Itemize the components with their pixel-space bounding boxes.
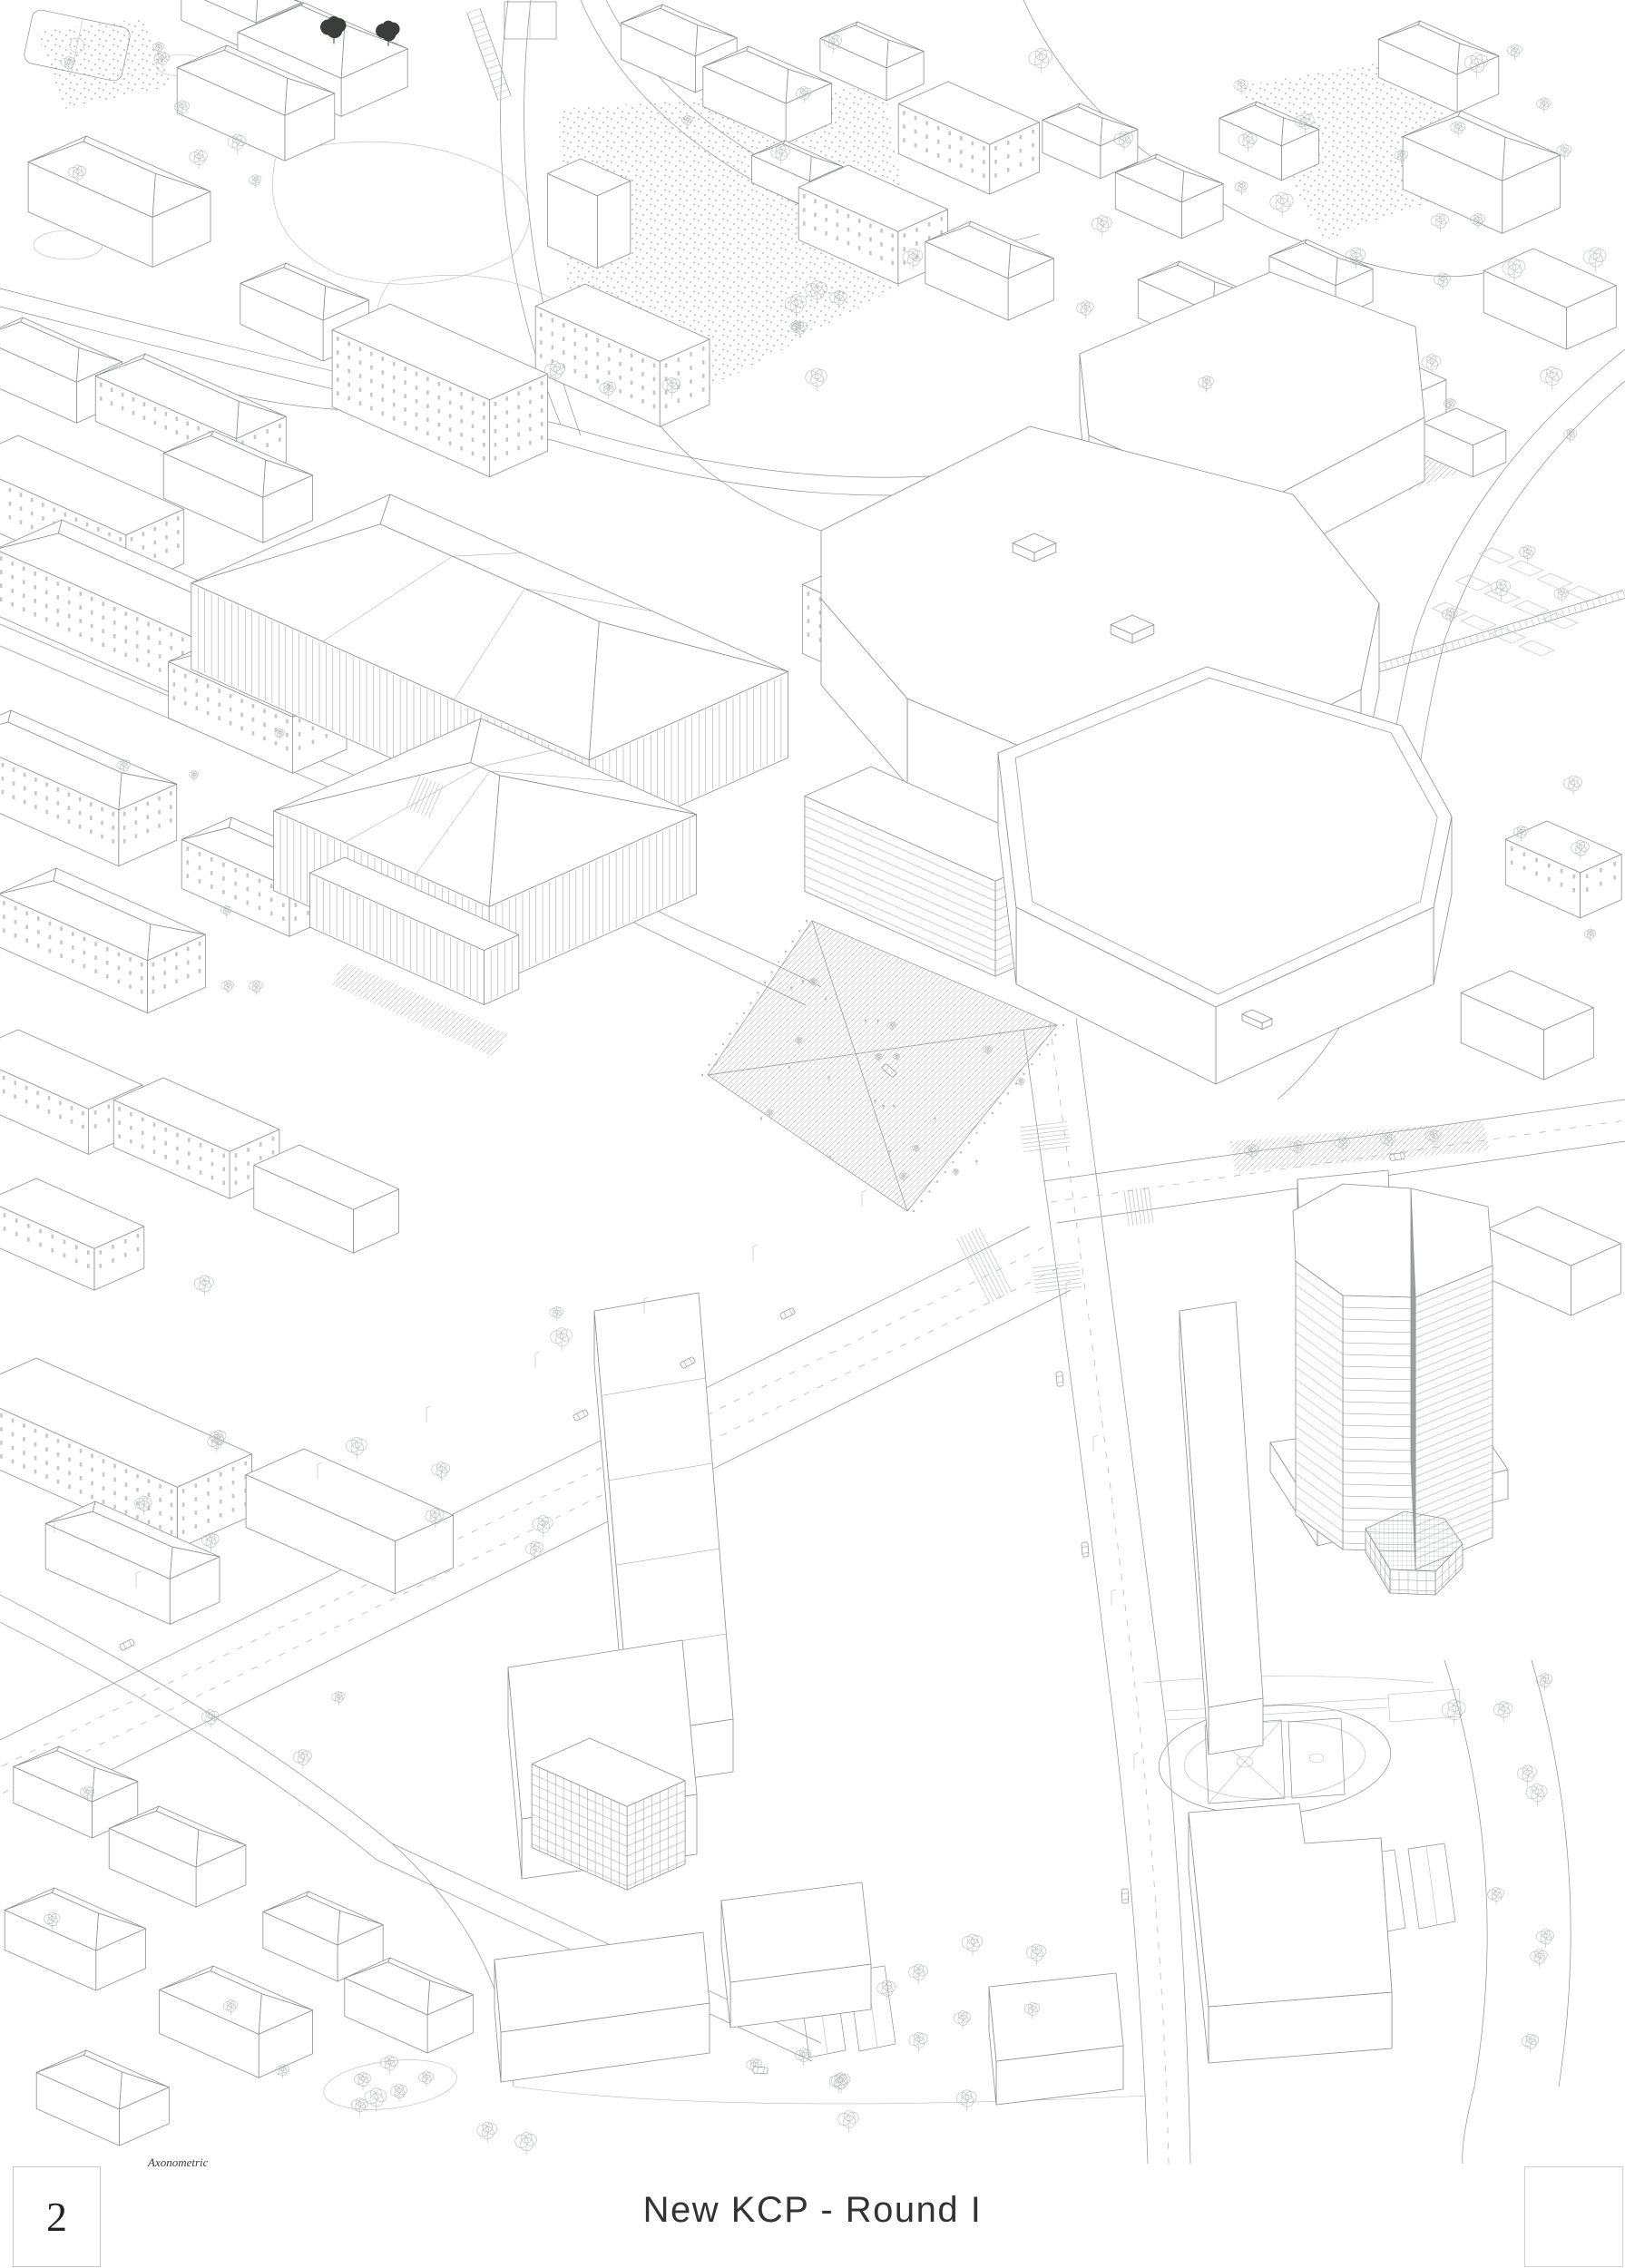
corner-box [1524,2166,1623,2267]
drawing-type-label: Axonometric [148,2156,208,2170]
presentation-page: 2 Axonometric New KCP - Round I [0,0,1625,2268]
page-title: New KCP - Round I [0,2190,1625,2231]
axonometric-drawing [0,0,1625,2268]
